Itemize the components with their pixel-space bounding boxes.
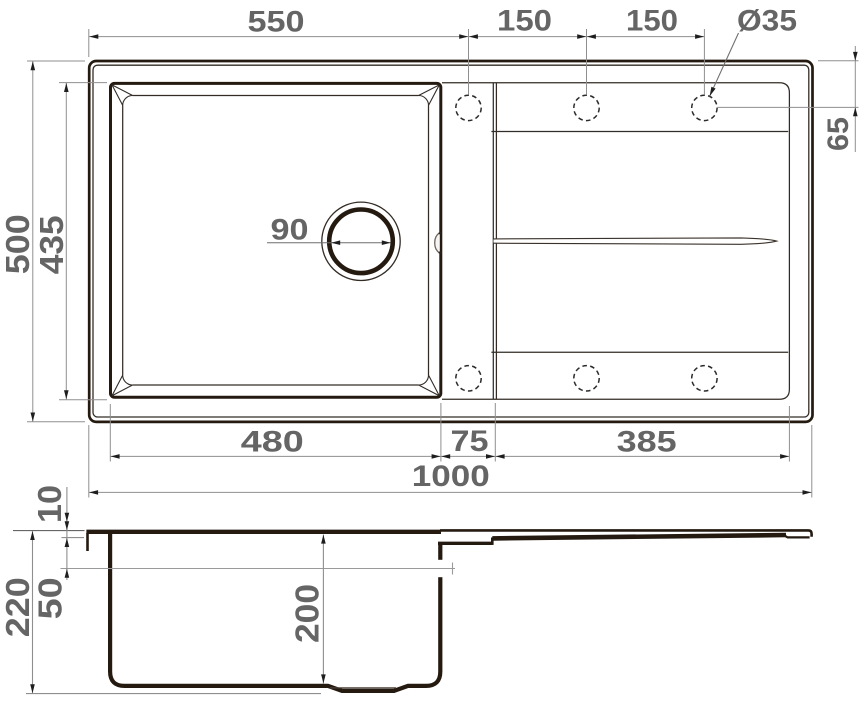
svg-text:480: 480 <box>241 425 304 458</box>
svg-text:200: 200 <box>289 584 326 643</box>
svg-text:Ø35: Ø35 <box>737 5 797 38</box>
svg-text:75: 75 <box>451 425 489 458</box>
svg-text:435: 435 <box>33 215 70 274</box>
svg-text:65: 65 <box>822 117 855 151</box>
svg-text:10: 10 <box>31 485 68 523</box>
svg-text:500: 500 <box>0 214 36 274</box>
svg-text:1000: 1000 <box>412 460 490 493</box>
svg-text:90: 90 <box>271 214 309 247</box>
svg-text:50: 50 <box>32 577 69 619</box>
svg-text:150: 150 <box>497 5 552 38</box>
svg-text:385: 385 <box>617 426 677 459</box>
svg-text:550: 550 <box>248 5 305 38</box>
svg-text:150: 150 <box>626 5 678 38</box>
